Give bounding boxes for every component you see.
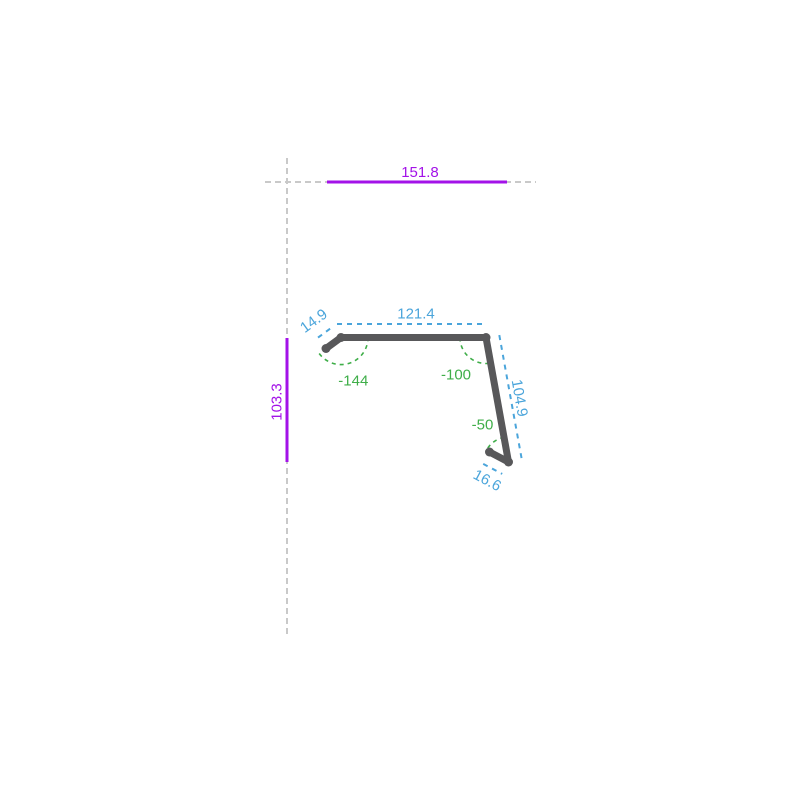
- profile-endpoint-dot: [322, 344, 331, 353]
- profile-drawing-stage: 151.8 103.3 14.9 121.4 104.9 16.6 -144 -…: [0, 0, 800, 800]
- segment-length-label-3: 104.9: [508, 378, 531, 418]
- segment-length-label-2: 121.4: [397, 305, 435, 322]
- profile-path: [326, 338, 509, 463]
- profile-vertex-dot: [337, 333, 346, 342]
- segment-dim-line-1: [318, 327, 333, 338]
- profile-vertex-dot: [482, 333, 491, 342]
- segment-length-label-1: 14.9: [297, 306, 331, 337]
- segment-length-label-4: 16.6: [470, 466, 504, 495]
- angle-label-2: -100: [441, 366, 471, 383]
- overall-height-label: 103.3: [268, 383, 285, 421]
- profile-drawing-canvas: 151.8 103.3 14.9 121.4 104.9 16.6 -144 -…: [0, 0, 800, 800]
- profile-vertex-dot: [504, 458, 513, 467]
- profile-endpoint-dot: [485, 448, 494, 457]
- angle-label-1: -144: [338, 372, 368, 389]
- angle-label-3: -50: [472, 416, 494, 433]
- overall-width-label: 151.8: [401, 164, 439, 181]
